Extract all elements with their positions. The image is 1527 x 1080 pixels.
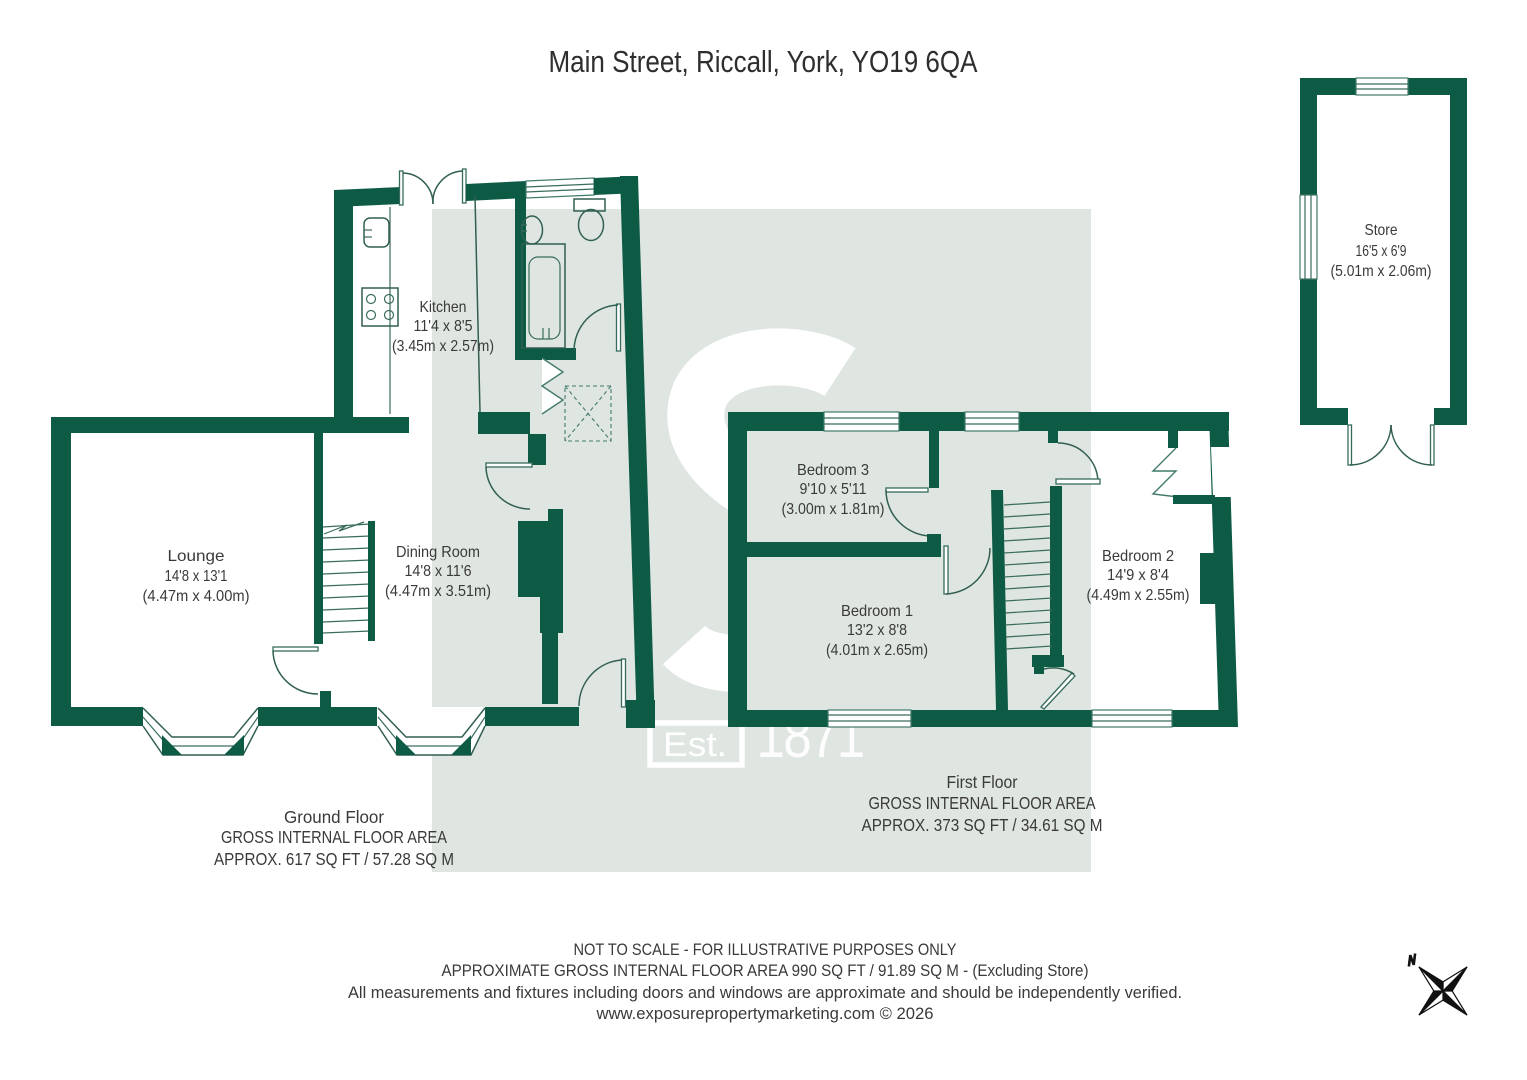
svg-text:GROSS INTERNAL FLOOR AREA: GROSS INTERNAL FLOOR AREA [221, 827, 447, 847]
svg-text:14'9 x 8'4: 14'9 x 8'4 [1107, 567, 1169, 584]
svg-text:Est.: Est. [663, 726, 727, 764]
svg-text:Bedroom 2: Bedroom 2 [1102, 548, 1174, 565]
svg-text:13'2 x 8'8: 13'2 x 8'8 [847, 622, 907, 639]
svg-text:All measurements and fixtures: All measurements and fixtures including … [348, 984, 1182, 1002]
svg-text:Bedroom 1: Bedroom 1 [841, 603, 913, 620]
svg-text:www.exposurepropertymarketing.: www.exposurepropertymarketing.com © 2026 [595, 1005, 933, 1023]
svg-text:Store: Store [1365, 222, 1398, 239]
svg-text:APPROX. 373 SQ FT / 34.61 SQ M: APPROX. 373 SQ FT / 34.61 SQ M [862, 815, 1103, 835]
svg-text:(4.47m x 3.51m): (4.47m x 3.51m) [385, 583, 491, 600]
svg-text:Dining Room: Dining Room [396, 544, 480, 561]
svg-text:(4.49m x 2.55m): (4.49m x 2.55m) [1087, 587, 1190, 604]
svg-text:Ground Floor: Ground Floor [284, 807, 384, 827]
svg-text:Main Street, Riccall, York, YO: Main Street, Riccall, York, YO19 6QA [549, 44, 978, 79]
svg-text:Lounge: Lounge [168, 548, 225, 565]
svg-text:APPROXIMATE GROSS INTERNAL FLO: APPROXIMATE GROSS INTERNAL FLOOR AREA 99… [442, 962, 1089, 980]
svg-text:(5.01m x 2.06m): (5.01m x 2.06m) [1331, 263, 1432, 280]
svg-text:Kitchen: Kitchen [420, 299, 467, 316]
svg-text:GROSS INTERNAL FLOOR AREA: GROSS INTERNAL FLOOR AREA [869, 793, 1096, 813]
svg-text:14'8 x 11'6: 14'8 x 11'6 [405, 563, 472, 580]
svg-text:11'4 x 8'5: 11'4 x 8'5 [414, 318, 473, 335]
svg-text:Bedroom 3: Bedroom 3 [797, 462, 869, 479]
svg-text:(3.00m x 1.81m): (3.00m x 1.81m) [782, 501, 885, 518]
svg-text:First Floor: First Floor [947, 772, 1018, 792]
svg-text:(4.47m x 4.00m): (4.47m x 4.00m) [143, 588, 250, 605]
svg-text:14'8 x 13'1: 14'8 x 13'1 [165, 568, 228, 585]
svg-text:APPROX. 617 SQ FT / 57.28 SQ M: APPROX. 617 SQ FT / 57.28 SQ M [214, 849, 454, 869]
svg-text:NOT TO SCALE - FOR ILLUSTRATIV: NOT TO SCALE - FOR ILLUSTRATIVE PURPOSES… [574, 941, 957, 959]
svg-text:16'5 x 6'9: 16'5 x 6'9 [1356, 243, 1407, 260]
svg-text:(3.45m x 2.57m): (3.45m x 2.57m) [392, 338, 494, 355]
svg-text:9'10 x 5'11: 9'10 x 5'11 [800, 481, 867, 498]
svg-text:(4.01m x 2.65m): (4.01m x 2.65m) [826, 642, 928, 659]
